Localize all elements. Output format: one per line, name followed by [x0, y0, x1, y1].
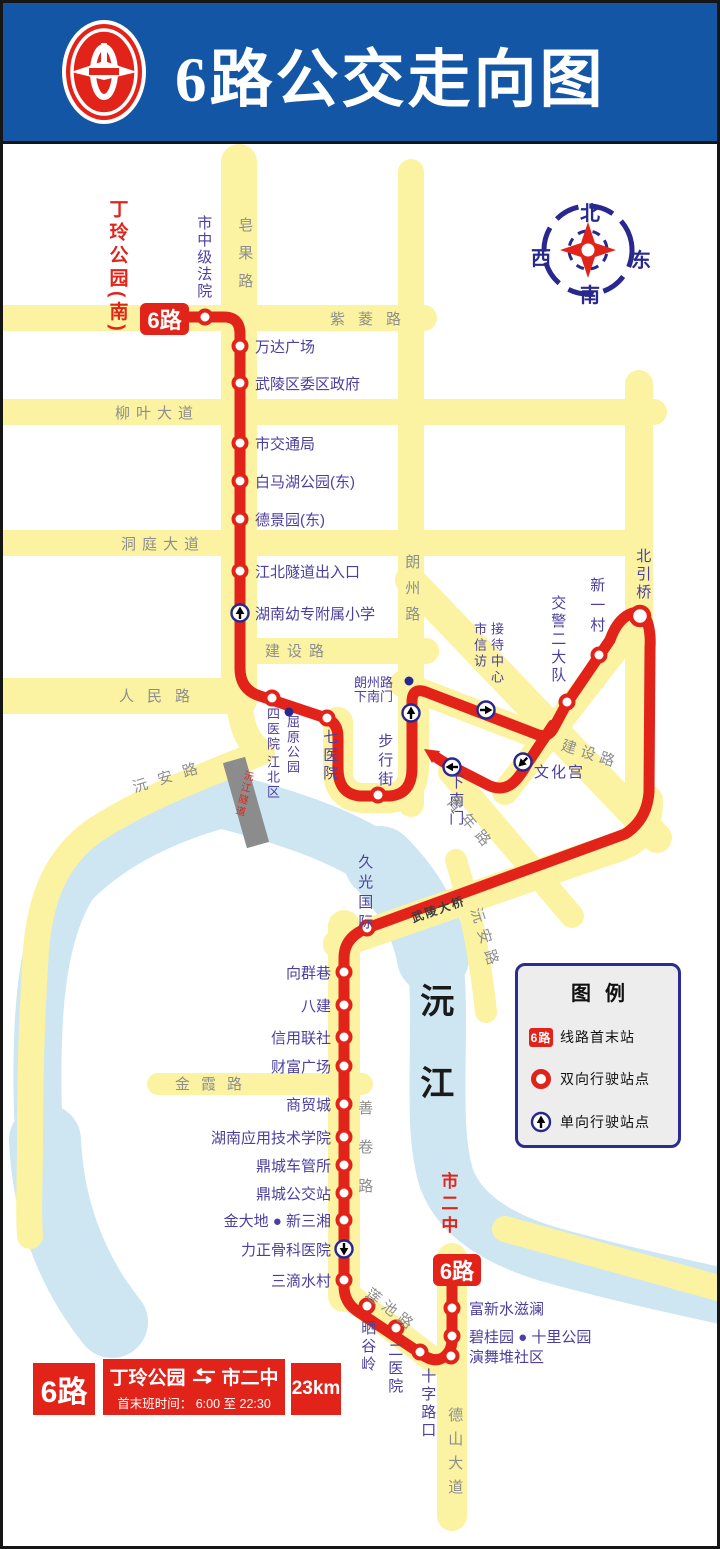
stop-marker	[234, 340, 247, 353]
legend-route-badge: 6路	[529, 1028, 554, 1047]
stop-label-lizheng: 力正骨科医院	[241, 1243, 331, 1259]
one-way-stop-icon-north	[403, 705, 420, 722]
stop-marker	[593, 649, 606, 662]
stop-label-gongjiaozhan: 鼎城公交站	[256, 1187, 331, 1203]
stop-label-shizhongjifayuan: 市中级法院	[195, 215, 211, 300]
info-schedule-label: 首末班时间：	[117, 1397, 192, 1411]
bidirectional-stop-icon	[530, 1068, 552, 1090]
stop-marker	[338, 1060, 351, 1073]
stop-label-xiangqunxiang: 向群巷	[286, 966, 331, 982]
stop-label-beiyinqiao: 北引桥	[634, 548, 650, 602]
stop-label-qiyiyuan: 七医院	[321, 729, 337, 783]
road-label-ziling: 紫菱路	[330, 312, 414, 328]
stop-marker	[338, 1159, 351, 1172]
one-way-stop-icon-south	[336, 1241, 353, 1258]
road-label-jianshe-west: 建设路	[265, 644, 331, 660]
compass-south-label: 南	[580, 279, 600, 308]
stop-label-dejingyuan: 德景园(东)	[255, 513, 325, 529]
stop-label-hunanyingyong: 湖南应用技术学院	[211, 1131, 331, 1147]
stop-marker	[446, 1302, 459, 1315]
compass-north-label: 北	[580, 197, 600, 226]
one-way-stop-icon	[530, 1111, 552, 1133]
legend-row-first-last: 6路 线路首末站	[528, 1027, 678, 1047]
stop-label-biguiyuan: 碧桂园 ● 十里公园	[469, 1330, 591, 1346]
route-start-badge: 6路	[140, 303, 189, 335]
stop-marker	[199, 311, 212, 324]
road-label-renmin: 人民路	[119, 689, 203, 705]
stop-marker	[266, 692, 279, 705]
stop-label-wulingqu: 武陵区委区政府	[255, 377, 360, 393]
stop-label-jiuguang: 久光国际	[356, 854, 372, 934]
legend-oneway-label: 单向行驶站点	[560, 1112, 650, 1132]
stop-label-cheguansuo: 鼎城车管所	[256, 1159, 331, 1175]
stop-marker	[372, 789, 385, 802]
landmark-label-langzhou-xiananmen: 朗州路 下南门	[354, 676, 393, 704]
landmark-label-jiedai-right: 接待中心	[489, 622, 503, 686]
terminal-end-label: 市二中	[438, 1172, 456, 1238]
page-title: 6路公交走向图	[175, 29, 606, 120]
info-from: 丁玲公园	[109, 1363, 185, 1390]
info-route-number: 6路	[33, 1363, 95, 1415]
road-label-jinxia: 金霞路	[175, 1077, 253, 1093]
header: 6路公交走向图	[3, 3, 717, 144]
road-label-deshan: 德山大道	[446, 1407, 462, 1503]
compass-west-label: 西	[531, 242, 551, 271]
legend-first-last-label: 线路首末站	[560, 1027, 635, 1047]
stop-marker	[338, 1098, 351, 1111]
stop-label-siyiyuan: 四医院	[265, 707, 279, 752]
stop-marker	[338, 1031, 351, 1044]
stop-marker	[338, 1214, 351, 1227]
stop-label-shaiguling: 晒谷岭	[359, 1320, 375, 1374]
bus-route-poster: 6路公交走向图 北 南 西 东 6路 6路 丁玲公园(南) 市中级法院 皂果路 …	[0, 0, 720, 1549]
stop-label-shangmaocheng: 商贸城	[286, 1098, 331, 1114]
info-schedule-line: 首末班时间： 6:00 至 22:30	[117, 1393, 271, 1412]
info-schedule-value: 6:00 至 22:30	[196, 1397, 271, 1411]
info-terminals-box: 丁玲公园 市二中 首末班时间： 6:00 至 22:30	[103, 1359, 285, 1415]
stop-label-caifuguangchang: 财富广场	[271, 1060, 331, 1076]
stop-marker	[414, 1346, 427, 1359]
stop-marker	[234, 437, 247, 450]
stop-marker	[321, 712, 334, 725]
road-label-langzhou: 朗州路	[403, 554, 419, 632]
landmark-dot	[405, 677, 414, 686]
landmark-label-jiangbeiqu: 江北区	[265, 755, 279, 800]
bus-company-logo	[59, 17, 149, 127]
river-name-label: 沅江	[414, 983, 451, 1147]
one-way-stop-icon-west	[444, 759, 461, 776]
road-label-shanjuan: 善卷路	[356, 1100, 372, 1217]
legend-title: 图例	[518, 977, 678, 1006]
stop-label-wanda: 万达广场	[255, 340, 315, 356]
road-label-zaoguo: 皂果路	[236, 217, 252, 301]
landmark-label-line1: 朗州路	[354, 676, 393, 690]
legend-row-bidirectional: 双向行驶站点	[528, 1068, 678, 1090]
legend-row-oneway: 单向行驶站点	[528, 1111, 678, 1133]
info-distance: 23km	[291, 1363, 341, 1415]
stop-marker	[338, 1131, 351, 1144]
stop-label-bajian: 八建	[301, 999, 331, 1015]
stop-label-baimahu: 白马湖公园(东)	[255, 475, 355, 491]
stop-marker	[234, 513, 247, 526]
stop-label-eryiyuan: 二医院	[386, 1342, 402, 1396]
stop-marker	[338, 999, 351, 1012]
landmark-label-quyuan-park: 屈原公园	[285, 715, 299, 775]
stop-marker	[338, 1187, 351, 1200]
stop-label-yanwudui: 演舞堆社区	[469, 1350, 544, 1366]
one-way-stop-icon-north	[232, 605, 249, 622]
stop-label-fuxin: 富新水滋澜	[469, 1302, 544, 1318]
stop-label-jiangbeisuidao: 江北隧道出入口	[255, 565, 360, 581]
compass-east-label: 东	[631, 244, 651, 273]
stop-label-jiaojing: 交警二大队	[549, 595, 565, 685]
stop-marker	[446, 1330, 459, 1343]
landmark-label-jiedai-left: 市信访	[472, 622, 486, 670]
one-way-stop-icon-east	[478, 702, 495, 719]
stop-marker	[338, 1274, 351, 1287]
stop-marker	[234, 377, 247, 390]
terminal-start-label: 丁玲公园(南)	[106, 199, 127, 335]
landmark-label-line2: 下南门	[354, 690, 393, 704]
stop-label-wenhuagong: 文化宫	[534, 765, 585, 781]
stop-label-xinyonglianshe: 信用联社	[271, 1031, 331, 1047]
road-label-dongting: 洞庭大道	[121, 537, 205, 553]
stop-label-youzhuan: 湖南幼专附属小学	[255, 607, 375, 623]
legend-bidirectional-label: 双向行驶站点	[560, 1069, 650, 1089]
stop-marker	[338, 966, 351, 979]
two-way-arrow-icon	[191, 1368, 217, 1384]
info-to: 市二中	[222, 1363, 279, 1390]
stop-label-buxingjie: 步行街	[376, 733, 392, 790]
info-terminals-line: 丁玲公园 市二中	[109, 1363, 278, 1390]
stop-label-shijiaotongju: 市交通局	[255, 437, 315, 453]
stop-label-sandishuicun: 三滴水村	[271, 1274, 331, 1290]
stop-marker	[234, 475, 247, 488]
stop-label-xinyicun: 新一村	[588, 577, 604, 637]
stop-marker-terminal-loop	[631, 607, 649, 625]
stop-marker	[561, 696, 574, 709]
route-end-badge: 6路	[433, 1254, 481, 1286]
stop-label-jindadi: 金大地 ● 新三湘	[224, 1214, 331, 1230]
stop-label-shizilukou: 十字路口	[419, 1368, 435, 1440]
road-label-liuye: 柳叶大道	[115, 406, 199, 422]
stop-marker	[445, 1350, 458, 1363]
stop-marker	[234, 565, 247, 578]
legend-box: 图例 6路 线路首末站 双向行驶站点 单向行驶站点	[515, 963, 681, 1148]
